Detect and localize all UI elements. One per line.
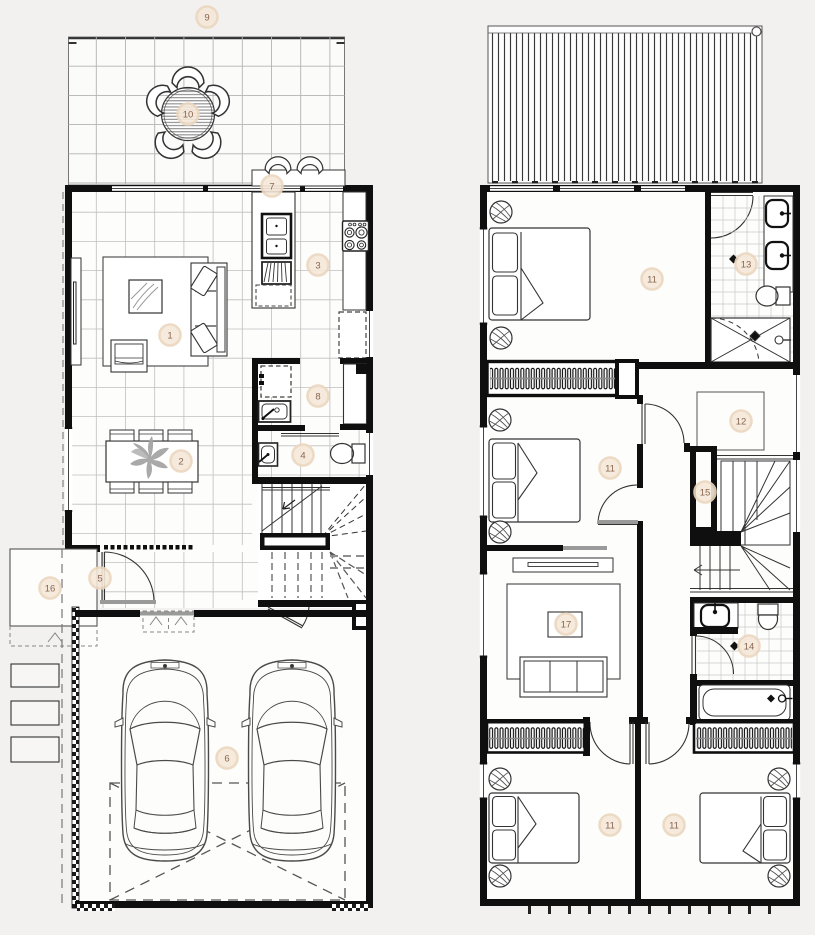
- svg-text:11: 11: [605, 463, 615, 474]
- svg-text:6: 6: [224, 753, 229, 764]
- svg-text:8: 8: [315, 391, 320, 402]
- svg-text:11: 11: [605, 820, 615, 831]
- svg-text:12: 12: [736, 416, 747, 427]
- svg-text:10: 10: [183, 109, 194, 120]
- svg-text:1: 1: [167, 330, 172, 341]
- svg-text:11: 11: [669, 820, 679, 831]
- svg-text:2: 2: [178, 456, 183, 467]
- svg-text:15: 15: [700, 487, 711, 498]
- svg-text:17: 17: [561, 619, 572, 630]
- svg-text:16: 16: [45, 583, 56, 594]
- svg-text:5: 5: [97, 573, 102, 584]
- svg-text:13: 13: [741, 259, 752, 270]
- svg-text:7: 7: [269, 181, 274, 192]
- svg-text:4: 4: [300, 450, 305, 461]
- svg-text:11: 11: [647, 274, 657, 285]
- svg-text:9: 9: [204, 12, 209, 23]
- svg-text:3: 3: [315, 260, 320, 271]
- svg-text:14: 14: [744, 641, 755, 652]
